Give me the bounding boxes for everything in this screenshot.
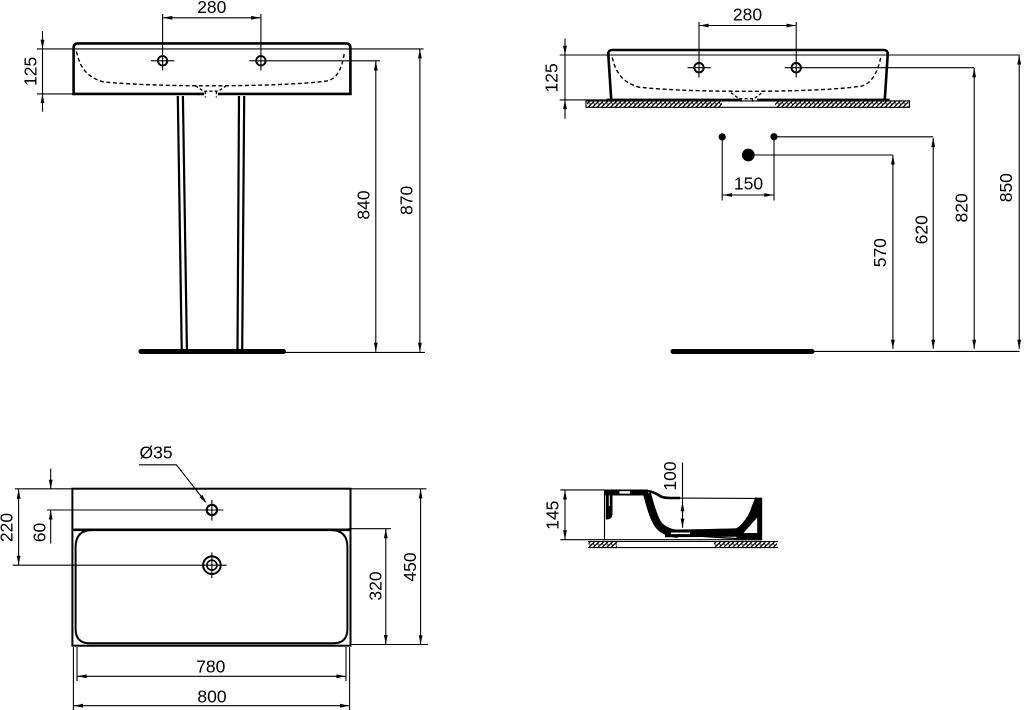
svg-text:220: 220 bbox=[0, 513, 16, 542]
svg-text:800: 800 bbox=[197, 687, 226, 707]
svg-text:450: 450 bbox=[400, 552, 420, 581]
svg-text:850: 850 bbox=[996, 173, 1016, 202]
svg-text:820: 820 bbox=[952, 193, 972, 222]
svg-text:145: 145 bbox=[543, 501, 563, 530]
svg-text:570: 570 bbox=[870, 238, 890, 267]
svg-text:840: 840 bbox=[354, 190, 374, 219]
svg-text:280: 280 bbox=[197, 0, 226, 17]
svg-text:60: 60 bbox=[30, 523, 50, 543]
svg-text:100: 100 bbox=[660, 461, 680, 490]
svg-text:Ø35: Ø35 bbox=[140, 443, 173, 463]
svg-text:320: 320 bbox=[366, 571, 386, 600]
svg-text:620: 620 bbox=[912, 215, 932, 244]
svg-text:280: 280 bbox=[733, 4, 762, 24]
svg-text:150: 150 bbox=[734, 173, 763, 193]
svg-text:780: 780 bbox=[196, 657, 225, 677]
svg-text:125: 125 bbox=[541, 63, 561, 92]
svg-text:870: 870 bbox=[397, 186, 417, 215]
svg-text:125: 125 bbox=[21, 57, 41, 86]
